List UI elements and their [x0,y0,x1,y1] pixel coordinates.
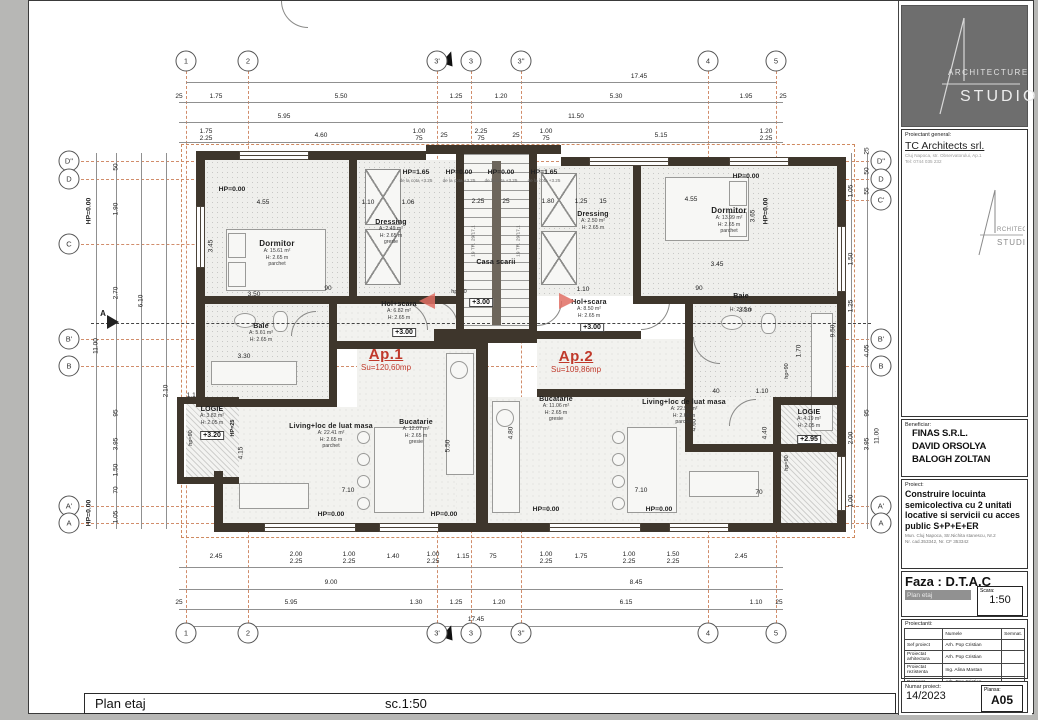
dimension-label: 2.45 [210,553,223,560]
entry-arrow-icon [419,293,435,309]
dimension-label: 1.40 [387,553,400,560]
svg-text:STUDIO: STUDIO [997,238,1025,247]
proiectant-label: Proiectant general: [905,132,1027,138]
numar-proiect-box: Numar proiect: 14/2023 Plansa: A05 [901,681,1028,713]
room-label-baie-2: BaieA: 5.01 m²H: 2.65 m [729,293,753,313]
grid-bubble: B' [59,329,80,350]
grid-bubble: B' [871,329,892,350]
scara-box: Scara: 1:50 [977,586,1023,616]
pillow [228,262,246,287]
proiectant-addr2: Tel: 0744 035 232 [905,159,1027,165]
chair [612,453,625,466]
dimension-label: 1.25 [575,198,588,205]
dimension-label: 25 [440,132,447,139]
stair-stringer [492,161,501,325]
proiect-label: Proiect: [905,482,1027,488]
beneficiar-line: BALOGH ZOLTAN [912,454,1027,467]
logo-a-small-icon: RCHITECTURE STUDIO [935,185,1025,260]
grid-bubble: A [871,513,892,534]
grid-bubble: 5 [766,51,787,72]
pillow [228,233,246,258]
chair [357,497,370,510]
hp-label: HP=25 [230,420,236,437]
dimension-label: 5.15 [655,132,668,139]
grid-bubble: 3 [461,51,482,72]
dimension-label: 6.15 [620,599,633,606]
dimension-label: 1.05 [848,185,855,198]
dimension-label: 1.95 [740,93,753,100]
dimension-label: 1.00 [848,495,855,508]
room-label-dressing-1: DressingA: 2.49 m²H: 2.65 mgresie [375,219,407,246]
sink [496,409,514,427]
entry-arrow-icon [559,293,575,309]
chair [612,475,625,488]
room-label-hol-2: Hol+scaraA: 8.50 m²H: 2.65 m [571,299,606,319]
dimension-label: 1.10 [362,199,375,206]
row-role: Proiectat rezistenta [905,664,943,677]
dimension-label: 25 [502,198,509,205]
dimension-label: 5.50 [445,440,452,453]
grid-bubble: B [871,356,892,377]
row-role: Sef proiect [905,640,943,651]
dimension-label: 50 [864,167,871,174]
section-line-A [91,323,871,324]
dimension-label: 1.70 [796,345,803,358]
dimension-label: 1.502.25 [667,551,680,565]
title-block: ARCHITECTURE STUDIO Proiectant general: … [898,1,1032,715]
dimension-label: 55 [864,187,871,194]
hp-label: HP=0.00 [86,198,93,225]
dimension-label: 25 [779,93,786,100]
hp-cota: de la cota +3.25 [400,178,433,183]
dimension-label: 95 [113,409,120,416]
dimension-label: 2.45 [735,553,748,560]
dimension-label: 6.10 [138,295,145,308]
dimension-label: 1.15 [457,553,470,560]
floor-plan: 1 2 3' 3 3'' 4 5 1 2 3' 3 3'' 4 5 D'' D … [29,1,897,693]
row-name: Arh. Pop Cristian [943,640,1002,651]
hp-label: HP=1.65 [531,169,558,176]
dimension-label: 8.45 [630,579,643,586]
dimension-label: 1.20 [495,93,508,100]
proiect-addr2: Nr. cad.353342, Nr. CF 353342 [905,539,1027,545]
section-marker-A-label: A [100,309,106,318]
apartment-2-label: Ap.2 Su=109,86mp [551,348,601,374]
dimension-label: 1.80 [542,198,555,205]
sofa [239,483,309,509]
col-semnat: Semnat. [1002,629,1025,640]
stair-note: 19 TR. 29/17,1 [517,225,522,257]
architecture-studio-logo: ARCHITECTURE STUDIO [901,5,1028,127]
wall [685,304,693,452]
hp-label: HP=0.00 [446,169,473,176]
dimension-label: 1.90 [113,203,120,216]
wardrobe [541,231,577,285]
dimension-label: 11.50 [568,113,584,120]
plansa-box: Plansa: A05 [981,685,1023,712]
grid-bubble: 3'' [511,623,532,644]
logo-a-icon [902,6,1029,126]
grid-bubble: 4 [698,51,719,72]
dimension-label: 1.20 [493,599,506,606]
wall [685,444,837,452]
dimension-label: 3.65 [750,210,757,223]
row-name: Ing. Alina Mastan [943,664,1002,677]
window [264,523,356,532]
dimension-label: 1.752.25 [200,128,213,142]
wall [633,157,641,304]
hp-label: HP=0.00 [431,511,458,518]
proiect-title: Construire locuinta semicolectiva cu 2 u… [905,489,1024,531]
grid-bubble: A [59,513,80,534]
proiectant-box: Proiectant general: TC Architects srl. C… [901,129,1028,417]
section-marker-A-icon [107,315,119,329]
dimension-label: 2.002.25 [290,551,303,565]
stair-note: 19 TR. 29/17,1 [472,225,477,257]
proiectant-name: TC Architects srl. [905,140,1027,152]
grid-bubble: B [59,356,80,377]
chair [357,453,370,466]
dimension-label: 1.10 [577,286,590,293]
dimension-label: 95 [864,409,871,416]
dimension-label: 25 [864,147,871,154]
dimension-label: 2.2575 [475,128,488,142]
dimension-label: 17.45 [631,73,647,80]
level-marker: +3.00 [392,328,416,337]
grid-bubble: 3' [427,51,448,72]
window [196,206,205,268]
hp-cota: de la cota +3.25 [528,178,561,183]
proiectanti-label: Proiectanti: [905,621,1027,627]
level-marker: +2.95 [797,435,821,444]
hp-label: HP=0.00 [86,500,93,527]
grid-bubble: C' [871,190,892,211]
dimension-label: 1.202.25 [760,128,773,142]
room-label-bucatarie-1: BucatarieA: 12.07 m²H: 2.65 mgresie [399,419,433,446]
dimension-label: 25 [512,132,519,139]
wall [349,151,357,304]
dimension-label: 75 [489,553,496,560]
dimension-label: 1.0075 [413,128,426,142]
dimension-label: 1.50 [848,253,855,266]
room-label-logie-2: LOGIEA: 4.19 m²H: 2.05 m [797,409,821,429]
dimension-label: 9.00 [325,579,338,586]
hp-cota: de la cota +3.25 [443,178,476,183]
dimension-label: 2.10 [163,385,170,398]
grid-bubble: D [59,169,80,190]
row-name: Arh. Pop Cristian [943,651,1002,664]
hp-label: HP=0.00 [318,511,345,518]
proiectanti-table: NumeleSemnat. Sef proiectArh. Pop Cristi… [904,628,1025,688]
wall [537,331,641,339]
dimension-label: 4.55 [257,199,270,206]
plansa-value: A05 [982,693,1022,707]
wall [329,304,337,407]
dimension-label: 50 [113,163,120,170]
room-label-dormitor-1: DormitorA: 15.61 m²H: 2.65 mparchet [259,239,294,268]
dimension-label: 90 [324,285,331,292]
pillow [729,181,747,206]
room-label-bucatarie-2: BucatarieA: 11.06 m²H: 2.65 mgresie [539,396,573,423]
sofa [689,471,759,497]
grid-bubble: D [871,169,892,190]
grid-bubble: 3'' [511,51,532,72]
wall [426,145,561,154]
dimension-label: 2.70 [113,287,120,300]
dimension-label: 5.30 [610,93,623,100]
col-numele: Numele [943,629,1002,640]
grid-bubble: C [59,234,80,255]
dimension-label: 4.40 [762,427,769,440]
grid-bubble: 5 [766,623,787,644]
dimension-label: 7.10 [635,487,648,494]
dimension-label: 1.25 [450,93,463,100]
dimension-label: 2.25 [472,198,485,205]
dimension-label: 1.002.25 [343,551,356,565]
svg-text:RCHITECTURE: RCHITECTURE [997,227,1025,233]
room-label-logie-1: LOGIEA: 3.82 m²H: 2.05 m [200,406,224,426]
dimension-label: 1.30 [410,599,423,606]
grid-bubble: 3' [427,623,448,644]
grid-bubble: 1 [176,51,197,72]
dimension-label: 3.95 [113,438,120,451]
door-arc [281,1,308,28]
chair [612,431,625,444]
window [589,157,669,166]
dimension-label: 4.60 [315,132,328,139]
dimension-label: 9.50 [830,325,837,338]
bathtub [211,361,297,385]
window [549,523,641,532]
window [729,157,789,166]
footer-scale: sc.1:50 [385,696,427,711]
dimension-label: 3.30 [238,353,251,360]
dimension-label: 1.50 [113,464,120,477]
wall [177,397,184,484]
hp-label: HP=0.00 [646,506,673,513]
dimension-label: 4.55 [685,196,698,203]
apartment-1-label: Ap.1 Su=120,60mp [361,346,411,372]
row-role: Proiectat arhitectura [905,651,943,664]
wall [773,397,845,405]
sheet-name-highlight: Plan etaj [905,590,971,600]
dimension-label: 1.75 [210,93,223,100]
dimension-label: 15 [599,198,606,205]
wall [773,397,781,523]
dimension-label: 1.06 [402,199,415,206]
room-label-living-1: Living+loc de luat masaA: 22.41 m²H: 2.6… [289,423,373,450]
dimension-label: 4.80 [508,427,515,440]
dimension-label: 1.0075 [540,128,553,142]
level-marker: +3.20 [200,431,224,440]
wall [196,151,426,160]
dimension-label: 1.002.25 [623,551,636,565]
dimension-label: 5.95 [285,599,298,606]
dining-table [627,427,677,513]
wall [177,477,239,484]
room-label-baie-1: BaieA: 5.61 m²H: 2.65 m [249,323,273,343]
dimension-label: 1.002.25 [427,551,440,565]
dimension-label: 40 [712,388,719,395]
dimension-label: 90 [695,285,702,292]
hp-label: HP=0.00 [533,506,560,513]
level-marker: +3.00 [580,323,604,332]
hp-label: HP=0.00 [488,169,515,176]
dimension-label: 5.95 [278,113,291,120]
sheet-footer: Plan etaj sc.1:50 [84,693,896,714]
window [837,456,846,511]
dimension-label: 3.95 [864,438,871,451]
window [379,523,439,532]
wall [476,343,488,531]
grid-bubble: 2 [238,51,259,72]
beneficiar-box: Beneficiar: FINAS S.R.L. DAVID ORSOLYA B… [901,419,1028,477]
logo-word-1: ARCHITECTURE [948,68,1029,77]
dimension-label: 3.45 [711,261,724,268]
dimension-label: 1.10 [756,388,769,395]
room-label-dressing-2: DressingA: 2.50 m²H: 2.65 m [577,211,609,231]
room-label-living-2: Living+loc de luat masaA: 22.59 m²H: 2.6… [642,399,726,426]
sink [450,361,468,379]
dimension-label: 1.75 [575,553,588,560]
logo-word-2: STUDIO [960,88,1038,106]
dimension-label: 7.10 [342,487,355,494]
dimension-label: 1.002.25 [540,551,553,565]
dimension-label: 70 [755,489,762,496]
wall [196,151,205,403]
hp90-label: hp=90 [784,363,790,378]
grid-bubble: 4 [698,623,719,644]
hp-label: HP=0.00 [219,186,246,193]
dimension-label: 4.15 [238,447,245,460]
dimension-label: 11.00 [874,428,881,444]
room-label-casa-scarii: Casa scarii [476,259,515,266]
window [837,226,846,292]
hp-label: HP=0.00 [733,173,760,180]
dimension-label: 70 [113,486,120,493]
hp-label: HP=0.00 [763,198,770,225]
dimension-label: 25 [175,599,182,606]
dimension-label: 1.25 [848,300,855,313]
dimension-label: 4.05 [864,345,871,358]
dimension-label: 1.25 [450,599,463,606]
grid-bubble: 3 [461,623,482,644]
room-label-hol-1: Hol+scaraA: 6.82 m²H: 2.65 m [381,301,416,321]
dimension-label: 5.50 [335,93,348,100]
toilet [273,311,288,332]
dimension-label: 1.05 [113,511,120,524]
drawing-sheet: 1 2 3' 3 3'' 4 5 1 2 3' 3 3'' 4 5 D'' D … [28,0,1034,714]
scara-value: 1:50 [978,594,1022,606]
beneficiar-line: DAVID ORSOLYA [912,441,1027,454]
wall [196,296,457,304]
hp-cota: de la cota +3.25 [485,178,518,183]
hp90-label: hp=90 [188,430,194,445]
grid-bubble: 2 [238,623,259,644]
dimension-label: 25 [175,93,182,100]
window [239,151,309,160]
chair [357,475,370,488]
dimension-label: 25 [775,599,782,606]
level-marker: +3.00 [469,298,493,307]
room-label-dormitor-2: DormitorA: 13.99 m²H: 2.65 mparchet [711,206,746,235]
footer-title: Plan etaj [95,696,146,711]
proiectanti-box: Proiectanti: NumeleSemnat. Sef proiectAr… [901,619,1028,679]
dimension-label: 2.00 [848,432,855,445]
chair [612,497,625,510]
hp90-label: hp=90 [784,455,790,470]
beneficiar-line: FINAS S.R.L. [912,428,1027,441]
dimension-label: 11.00 [93,338,100,354]
dimension-label: 3.45 [208,240,215,253]
window [669,523,729,532]
dimension-label: 1.10 [750,599,763,606]
wardrobe [365,169,401,225]
grid-bubble: 1 [176,623,197,644]
proiect-box: Proiect: Construire locuinta semicolecti… [901,479,1028,569]
hp-label: HP=1.65 [403,169,430,176]
faza-box: Faza : D.T.A.C Plan etaj Scara: 1:50 [901,571,1028,617]
